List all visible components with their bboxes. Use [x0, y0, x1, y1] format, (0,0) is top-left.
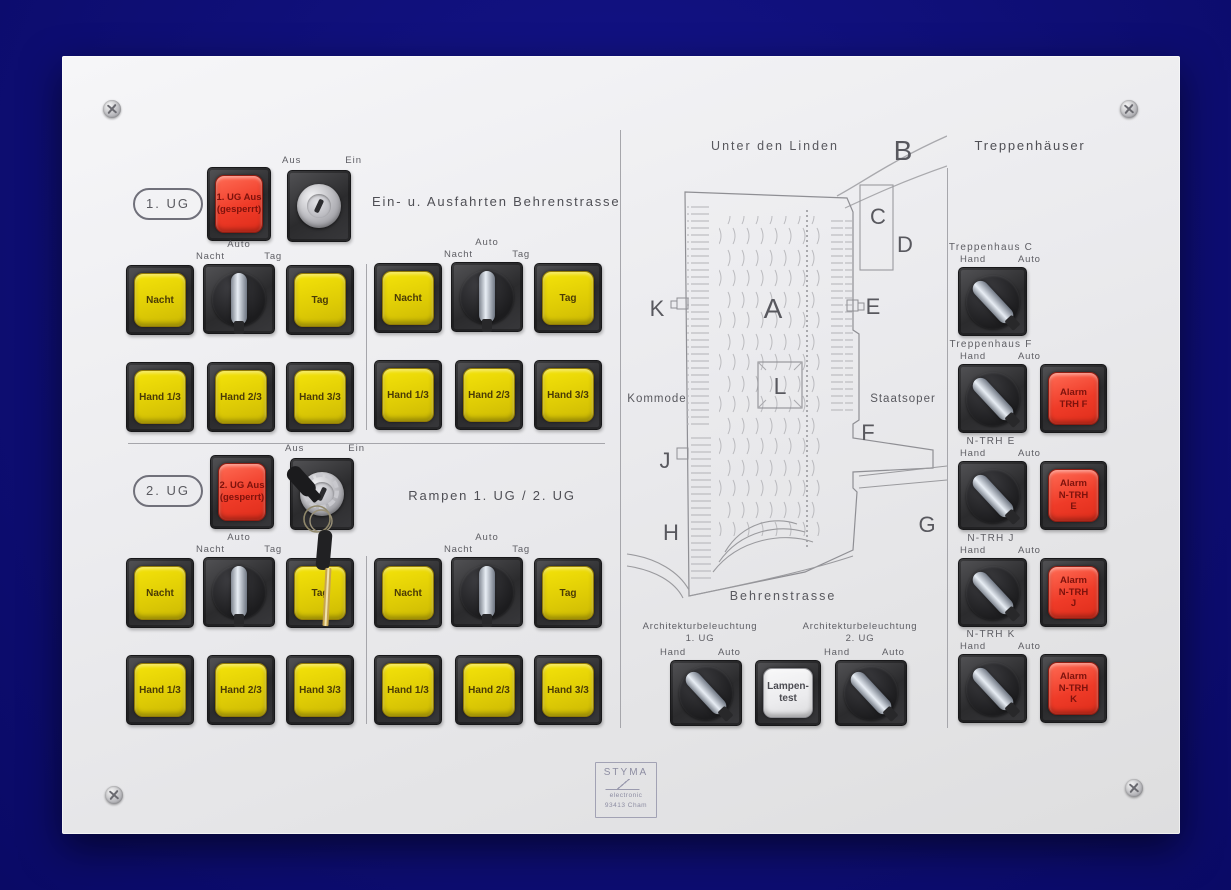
logo-sub: electronic93413 Cham	[596, 791, 656, 811]
map-marker-l: L	[774, 373, 787, 399]
ug2-left-button-group: Nacht Auto Nacht Tag Tag Hand 1/3 Hand 2…	[126, 558, 366, 724]
rotary-face	[212, 272, 266, 326]
map-marker-h: H	[663, 520, 679, 545]
key-switch-off-label: Aus	[285, 443, 304, 454]
hand-3-3-button[interactable]: Hand 3/3	[534, 360, 602, 430]
hand-2-3-cap: Hand 2/3	[463, 368, 515, 422]
mode-auto-label: Auto	[1018, 254, 1041, 265]
hand-3-3-cap: Hand 3/3	[542, 368, 594, 422]
ug1-lock-label: 1. UG Aus(gesperrt)	[216, 192, 261, 216]
selector-night-label: Nacht	[196, 251, 225, 262]
night-button-cap: Nacht	[382, 566, 434, 620]
divider	[128, 443, 605, 444]
rotary-face	[212, 565, 266, 619]
alarm-n-trh-e-button[interactable]: AlarmN-TRHE	[1040, 461, 1107, 530]
day-night-selector[interactable]: Auto Nacht Tag	[451, 557, 523, 627]
day-button[interactable]: Tag	[534, 558, 602, 628]
rotary-face	[966, 566, 1020, 620]
divider	[366, 264, 367, 430]
arch-lighting-2-title: Architekturbeleuchtung	[780, 622, 940, 633]
section-heading-treppenhaeuser: Treppenhäuser	[950, 138, 1110, 153]
day-button-cap: Tag	[542, 566, 594, 620]
trh-item-e: N-TRH E Hand Auto AlarmN-TRHE	[958, 436, 1108, 531]
selector-night-label: Nacht	[444, 249, 473, 260]
hand-2-3-label: Hand 2/3	[468, 685, 510, 696]
rotary-face	[460, 270, 514, 324]
mode-auto-label: Auto	[718, 648, 741, 659]
selector-day-label: Tag	[264, 251, 282, 262]
arch-lighting-2-sub: 2. UG	[780, 634, 940, 645]
rotary-knob	[969, 374, 1016, 423]
alarm-cap: AlarmN-TRHK	[1048, 662, 1099, 715]
day-button-cap: Tag	[294, 566, 346, 620]
key-switch-on-label: Ein	[345, 155, 362, 166]
ug2-lock-label: 2. UG Aus(gesperrt)	[219, 480, 264, 504]
hand-1-3-button[interactable]: Hand 1/3	[126, 655, 194, 725]
night-button-cap: Nacht	[134, 273, 186, 327]
selector-auto-label: Auto	[204, 239, 274, 250]
logo-name: STYMA	[596, 767, 656, 778]
ug1-lock-button[interactable]: 1. UG Aus(gesperrt)	[207, 167, 271, 241]
trh-item-label: Treppenhaus C	[918, 242, 1064, 253]
ug1-key-switch[interactable]: Aus Ein	[287, 170, 351, 242]
hand-3-3-cap: Hand 3/3	[542, 663, 594, 717]
day-button[interactable]: Tag	[534, 263, 602, 333]
night-button[interactable]: Nacht	[126, 558, 194, 628]
alarm-n-trh-j-button[interactable]: AlarmN-TRHJ	[1040, 558, 1107, 627]
rotary-knob	[969, 664, 1016, 713]
mode-hand-label: Hand	[960, 641, 986, 652]
rotary-knob	[479, 566, 495, 618]
rotary-knob	[231, 566, 247, 618]
ug2-lock-button[interactable]: 2. UG Aus(gesperrt)	[210, 455, 274, 529]
night-button[interactable]: Nacht	[374, 263, 442, 333]
night-button-cap: Nacht	[134, 566, 186, 620]
hand-2-3-button[interactable]: Hand 2/3	[207, 362, 275, 432]
alarm-cap: AlarmN-TRHJ	[1048, 566, 1099, 619]
mode-hand-label: Hand	[660, 648, 686, 659]
night-button-label: Nacht	[394, 293, 422, 304]
night-button-label: Nacht	[146, 295, 174, 306]
alarm-n-trh-k-button[interactable]: AlarmN-TRHK	[1040, 654, 1107, 723]
day-button[interactable]: Tag	[286, 558, 354, 628]
arch-lighting-2-switch[interactable]	[835, 660, 907, 726]
section-heading-rampen: Rampen 1. UG / 2. UG	[392, 488, 592, 503]
hand-1-3-cap: Hand 1/3	[382, 663, 434, 717]
trh-k-switch[interactable]	[958, 654, 1027, 723]
selector-auto-label: Auto	[452, 532, 522, 543]
trh-item-label: N-TRH K	[918, 629, 1064, 640]
selector-day-label: Tag	[512, 249, 530, 260]
selector-night-label: Nacht	[196, 544, 225, 555]
night-button[interactable]: Nacht	[374, 558, 442, 628]
hand-2-3-label: Hand 2/3	[220, 392, 262, 403]
ug1-left-button-group: Nacht Auto Nacht Tag Tag Hand 1/3 Hand 2…	[126, 265, 366, 431]
arch-lighting-1-title: Architekturbeleuchtung	[620, 622, 780, 633]
hand-3-3-cap: Hand 3/3	[294, 370, 346, 424]
key-cylinder	[300, 472, 344, 516]
garage-floor-plan: Unter den Linden Behrenstrasse Kommode S…	[625, 120, 947, 616]
hand-1-3-label: Hand 1/3	[387, 685, 429, 696]
night-button-cap: Nacht	[382, 271, 434, 325]
hand-3-3-button[interactable]: Hand 3/3	[286, 655, 354, 725]
hand-1-3-label: Hand 1/3	[139, 685, 181, 696]
screw-top-right	[1120, 100, 1138, 118]
hand-1-3-cap: Hand 1/3	[382, 368, 434, 422]
mode-auto-label: Auto	[1018, 351, 1041, 362]
lamp-test-label: Lampen-test	[767, 681, 809, 706]
level-badge-1ug: 1. UG	[133, 188, 203, 220]
night-button-label: Nacht	[146, 588, 174, 599]
hand-1-3-label: Hand 1/3	[387, 390, 429, 401]
landmark-staatsoper: Staatsoper	[870, 393, 936, 405]
map-marker-j: J	[660, 448, 671, 473]
alarm-label: AlarmTRH F	[1060, 387, 1088, 411]
control-panel: 1. UG 1. UG Aus(gesperrt) Aus Ein Ein- u…	[62, 56, 1180, 834]
rotary-knob	[847, 669, 894, 718]
hand-1-3-button[interactable]: Hand 1/3	[374, 360, 442, 430]
selector-night-label: Nacht	[444, 544, 473, 555]
logo-mark	[605, 779, 647, 790]
rotary-face	[966, 275, 1020, 329]
map-marker-k: K	[650, 296, 665, 321]
screw-bottom-right	[1125, 779, 1143, 797]
trh-item-label: N-TRH J	[918, 533, 1064, 544]
rotary-face	[966, 469, 1020, 523]
trh-c-switch[interactable]	[958, 267, 1027, 336]
rotary-knob	[969, 277, 1016, 326]
map-marker-a: A	[764, 293, 783, 324]
alarm-cap: AlarmTRH F	[1048, 372, 1099, 425]
hand-2-3-button[interactable]: Hand 2/3	[455, 655, 523, 725]
day-button-cap: Tag	[542, 271, 594, 325]
hand-1-3-button[interactable]: Hand 1/3	[374, 655, 442, 725]
day-night-selector[interactable]: Auto Nacht Tag	[203, 264, 275, 334]
trh-item-j: N-TRH J Hand Auto AlarmN-TRHJ	[958, 533, 1108, 628]
screw-top-left	[103, 100, 121, 118]
mode-auto-label: Auto	[882, 648, 905, 659]
rotary-knob	[479, 271, 495, 323]
selector-day-label: Tag	[264, 544, 282, 555]
hand-3-3-label: Hand 3/3	[299, 392, 341, 403]
mode-auto-label: Auto	[1018, 448, 1041, 459]
hand-1-3-button[interactable]: Hand 1/3	[126, 362, 194, 432]
night-button-label: Nacht	[394, 588, 422, 599]
selector-auto-label: Auto	[204, 532, 274, 543]
hand-2-3-cap: Hand 2/3	[215, 370, 267, 424]
hand-2-3-cap: Hand 2/3	[215, 663, 267, 717]
hand-3-3-button[interactable]: Hand 3/3	[286, 362, 354, 432]
hand-2-3-button[interactable]: Hand 2/3	[455, 360, 523, 430]
alarm-cap: AlarmN-TRHE	[1048, 469, 1099, 522]
map-marker-e: E	[866, 294, 881, 319]
trh-f-switch[interactable]	[958, 364, 1027, 433]
trh-item-label: N-TRH E	[918, 436, 1064, 447]
key-switch-on-label: Ein	[348, 443, 365, 454]
section-heading-behrenstrasse: Ein- u. Ausfahrten Behrenstrasse	[372, 194, 612, 209]
lamp-test-cap: Lampen-test	[763, 668, 813, 718]
mode-hand-label: Hand	[960, 351, 986, 362]
trh-item-label: Treppenhaus F	[918, 339, 1064, 350]
trh-item-c: Treppenhaus C Hand Auto	[958, 242, 1108, 337]
map-marker-b: B	[894, 135, 913, 166]
rotary-face	[966, 372, 1020, 426]
rotary-knob	[969, 471, 1016, 520]
trh-item-k: N-TRH K Hand Auto AlarmN-TRHK	[958, 629, 1108, 724]
night-button[interactable]: Nacht	[126, 265, 194, 335]
day-night-selector[interactable]: Auto Nacht Tag	[203, 557, 275, 627]
rotary-face	[844, 666, 898, 720]
alarm-label: AlarmN-TRHE	[1059, 478, 1089, 514]
hand-1-3-label: Hand 1/3	[139, 392, 181, 403]
hand-2-3-cap: Hand 2/3	[463, 663, 515, 717]
rotary-knob	[682, 669, 729, 718]
rotary-face	[966, 662, 1020, 716]
day-button-label: Tag	[311, 588, 328, 599]
hand-1-3-cap: Hand 1/3	[134, 663, 186, 717]
alarm-trh-f-button[interactable]: AlarmTRH F	[1040, 364, 1107, 433]
rotary-knob	[231, 273, 247, 325]
key-switch-off-label: Aus	[282, 155, 301, 166]
hand-2-3-label: Hand 2/3	[468, 390, 510, 401]
mode-hand-label: Hand	[960, 448, 986, 459]
landmark-kommode: Kommode	[627, 393, 686, 405]
ug2-lock-button-cap: 2. UG Aus(gesperrt)	[218, 463, 266, 521]
hand-3-3-button[interactable]: Hand 3/3	[534, 655, 602, 725]
day-button-label: Tag	[311, 295, 328, 306]
mode-auto-label: Auto	[1018, 641, 1041, 652]
day-night-selector[interactable]: Auto Nacht Tag	[451, 262, 523, 332]
hand-2-3-label: Hand 2/3	[220, 685, 262, 696]
hand-3-3-label: Hand 3/3	[547, 390, 589, 401]
map-marker-d: D	[897, 232, 913, 257]
trh-e-switch[interactable]	[958, 461, 1027, 530]
hand-3-3-label: Hand 3/3	[299, 685, 341, 696]
street-label-behrenstrasse: Behrenstrasse	[730, 589, 837, 603]
alarm-label: AlarmN-TRHK	[1059, 671, 1089, 707]
hand-3-3-cap: Hand 3/3	[294, 663, 346, 717]
ug1-lock-button-cap: 1. UG Aus(gesperrt)	[215, 175, 263, 233]
mode-auto-label: Auto	[1018, 545, 1041, 556]
trh-j-switch[interactable]	[958, 558, 1027, 627]
mode-hand-label: Hand	[960, 254, 986, 265]
day-button-cap: Tag	[294, 273, 346, 327]
ug2-key-switch[interactable]: Aus Ein	[290, 458, 354, 530]
hand-2-3-button[interactable]: Hand 2/3	[207, 655, 275, 725]
arch-lighting-1-sub: 1. UG	[620, 634, 780, 645]
day-button-label: Tag	[559, 293, 576, 304]
map-marker-f: F	[861, 420, 874, 445]
trh-item-f: Treppenhaus F Hand Auto AlarmTRH F	[958, 339, 1108, 434]
street-label-unter-den-linden: Unter den Linden	[711, 139, 839, 153]
divider	[366, 556, 367, 724]
rotary-face	[460, 565, 514, 619]
hand-3-3-label: Hand 3/3	[547, 685, 589, 696]
ug2-right-button-group: Nacht Auto Nacht Tag Tag Hand 1/3 Hand 2…	[374, 558, 614, 724]
rotary-face	[679, 666, 733, 720]
screw-bottom-left	[105, 786, 123, 804]
rotary-knob	[969, 568, 1016, 617]
day-button-label: Tag	[559, 588, 576, 599]
map-marker-c: C	[870, 204, 886, 229]
arch-lighting-1-switch[interactable]	[670, 660, 742, 726]
mode-hand-label: Hand	[960, 545, 986, 556]
level-badge-2ug: 2. UG	[133, 475, 203, 507]
key-cylinder	[297, 184, 341, 228]
day-button[interactable]: Tag	[286, 265, 354, 335]
selector-day-label: Tag	[512, 544, 530, 555]
selector-auto-label: Auto	[452, 237, 522, 248]
manufacturer-logo: STYMA electronic93413 Cham	[595, 762, 657, 818]
mode-hand-label: Hand	[824, 648, 850, 659]
ug1-right-button-group: Nacht Auto Nacht Tag Tag Hand 1/3 Hand 2…	[374, 263, 614, 429]
hand-1-3-cap: Hand 1/3	[134, 370, 186, 424]
alarm-label: AlarmN-TRHJ	[1059, 575, 1089, 611]
lamp-test-button[interactable]: Lampen-test	[755, 660, 821, 726]
